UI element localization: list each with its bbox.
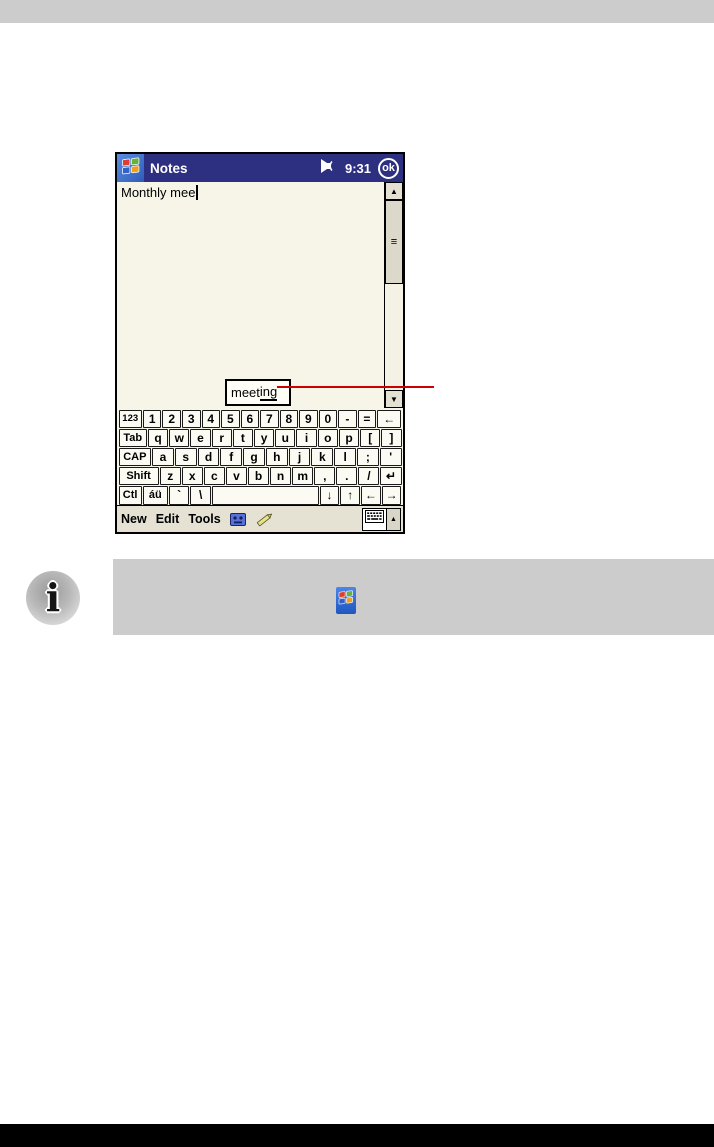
vertical-scrollbar[interactable]: ▲ ≡ ▼ [384,182,403,408]
key-r[interactable]: r [212,429,232,447]
key-t[interactable]: t [233,429,253,447]
key-q[interactable]: q [148,429,168,447]
text-caret [196,185,198,200]
key-h[interactable]: h [266,448,288,466]
key-bracket-left[interactable]: [ [360,429,380,447]
key-backtick[interactable]: ` [169,486,190,504]
menu-edit[interactable]: Edit [156,512,180,526]
key-tab[interactable]: Tab [119,429,147,447]
keyboard: 1231234567890-=←Tabqwertyuiop[]CAPasdfgh… [117,408,403,505]
key-3[interactable]: 3 [182,410,201,428]
key-space[interactable] [212,486,319,504]
menu-new[interactable]: New [121,512,147,526]
keyboard-icon [365,510,384,528]
scrollbar-thumb[interactable]: ≡ [385,200,403,284]
scroll-down-button[interactable]: ▼ [385,390,403,408]
note-editing-area[interactable]: Monthly mee ▲ ≡ ▼ [117,182,403,408]
key-2[interactable]: 2 [162,410,181,428]
page-header-bar [0,0,714,23]
key-o[interactable]: o [318,429,338,447]
key-shift[interactable]: Shift [119,467,159,485]
pocket-pc-screenshot: Notes 9:31 ok Monthly mee ▲ ≡ ▼ meeting … [115,152,405,534]
key-arrow-left[interactable]: ← [361,486,381,504]
windows-flag-icon [336,587,356,614]
input-panel-button[interactable] [362,508,387,531]
info-icon: i [26,571,80,625]
key-b[interactable]: b [248,467,269,485]
key-c[interactable]: c [204,467,225,485]
app-title: Notes [150,161,188,176]
key-semicolon[interactable]: ; [357,448,379,466]
windows-flag-icon [121,157,141,180]
word-completion-popup[interactable]: meeting [225,379,291,406]
key-apostrophe[interactable]: ' [380,448,402,466]
key-g[interactable]: g [243,448,265,466]
key-5[interactable]: 5 [221,410,240,428]
tip-box [113,559,714,635]
key-ctl[interactable]: Ctl [119,486,142,504]
suggested-word-prefix: meet [231,385,260,400]
menu-tools[interactable]: Tools [188,512,220,526]
key-i[interactable]: i [296,429,316,447]
page-footer-bar [0,1124,714,1147]
info-icon-glyph: i [46,579,60,617]
key-u[interactable]: u [275,429,295,447]
key-bracket-right[interactable]: ] [381,429,401,447]
key-w[interactable]: w [169,429,189,447]
clock[interactable]: 9:31 [345,161,371,176]
key-minus[interactable]: - [338,410,357,428]
key-1[interactable]: 1 [143,410,162,428]
start-menu-button[interactable] [117,154,144,182]
key-p[interactable]: p [339,429,359,447]
note-text: Monthly mee [121,185,198,200]
recording-toolbar-icon[interactable] [230,513,246,526]
key-x[interactable]: x [182,467,203,485]
key-arrow-right[interactable]: → [382,486,402,504]
key-y[interactable]: y [254,429,274,447]
key-n[interactable]: n [270,467,291,485]
callout-line [277,386,434,388]
title-bar: Notes 9:31 ok [117,154,403,182]
key-equals[interactable]: = [358,410,377,428]
key-backspace[interactable]: ← [377,410,401,428]
key-j[interactable]: j [289,448,311,466]
key-a[interactable]: a [152,448,174,466]
key-d[interactable]: d [198,448,220,466]
key-s[interactable]: s [175,448,197,466]
key-enter[interactable]: ↵ [380,467,401,485]
key-6[interactable]: 6 [241,410,260,428]
key-f[interactable]: f [220,448,242,466]
ok-button[interactable]: ok [378,158,399,179]
key-v[interactable]: v [226,467,247,485]
key-backslash[interactable]: \ [190,486,211,504]
key-l[interactable]: l [334,448,356,466]
key-accents[interactable]: áü [143,486,168,504]
key-arrow-down[interactable]: ↓ [320,486,340,504]
suggested-word-underlined: ing [260,384,277,401]
key-k[interactable]: k [311,448,333,466]
pen-icon[interactable] [254,511,274,528]
key-123[interactable]: 123 [119,410,142,428]
key-m[interactable]: m [292,467,313,485]
key-z[interactable]: z [160,467,181,485]
key-slash[interactable]: / [358,467,379,485]
key-8[interactable]: 8 [280,410,299,428]
key-period[interactable]: . [336,467,357,485]
key-4[interactable]: 4 [202,410,221,428]
key-7[interactable]: 7 [260,410,279,428]
key-cap[interactable]: CAP [119,448,152,466]
key-0[interactable]: 0 [319,410,338,428]
scroll-up-button[interactable]: ▲ [385,182,403,200]
command-bar: New Edit Tools [117,505,403,532]
key-9[interactable]: 9 [299,410,318,428]
key-arrow-up[interactable]: ↑ [340,486,360,504]
key-e[interactable]: e [190,429,210,447]
speaker-icon[interactable] [321,159,338,178]
input-panel-menu-arrow[interactable]: ▲ [387,508,401,531]
key-comma[interactable]: , [314,467,335,485]
